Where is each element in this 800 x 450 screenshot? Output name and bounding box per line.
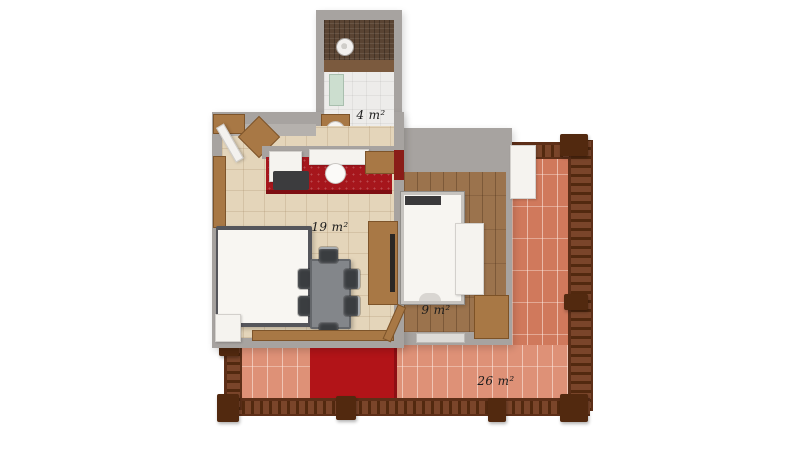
bedroom-area-label: 9 m² <box>408 303 464 317</box>
terrace-rug <box>310 347 397 402</box>
dining-chair-right-2 <box>344 296 360 316</box>
kitchen-shelf <box>309 149 369 165</box>
bathroom-area-label: 4 m² <box>346 108 396 122</box>
bedroom-cabinet <box>474 295 509 339</box>
dining-chair-right-1 <box>344 269 360 289</box>
red-accent-wall <box>394 150 404 180</box>
dining-chair-top <box>319 247 338 263</box>
left-wall-wardrobe <box>213 156 226 228</box>
terrace-railing-right <box>568 140 593 411</box>
shower-mosaic-tiles <box>324 20 394 64</box>
living-room-area-label: 19 m² <box>302 220 358 234</box>
kitchen-sink <box>325 163 346 184</box>
bed-foot-notch <box>419 293 441 301</box>
kitchen-cooktop <box>273 171 309 190</box>
shower-head <box>336 38 354 56</box>
tv-cabinet <box>368 221 398 305</box>
shower-tile-band <box>324 60 394 72</box>
window-sill-bench <box>252 330 394 341</box>
railing-post-bottom-mid <box>336 396 356 420</box>
tv-screen <box>390 234 395 292</box>
railing-post-right-mid <box>564 294 588 310</box>
railing-post-bottom-mid2 <box>488 398 506 422</box>
terrace-railing-bottom <box>224 398 590 416</box>
floor-plan: 4 m² 19 m² 9 m² 26 m² <box>0 0 800 450</box>
railing-post-bottom-left <box>217 394 239 422</box>
terrace-floor-bottom <box>237 345 570 399</box>
kitchen-side-bench <box>365 151 396 174</box>
bedroom-desk <box>455 223 484 295</box>
bathroom-radiator <box>329 74 344 106</box>
terrace-storage-box <box>510 145 536 199</box>
terrace-area-label: 26 m² <box>464 374 528 388</box>
bedroom-door-threshold <box>416 333 465 343</box>
railing-post-bottom-right <box>560 394 588 422</box>
railing-post-top-right <box>560 134 588 156</box>
bed-headboard <box>405 196 441 205</box>
corner-cabinet <box>215 314 241 342</box>
